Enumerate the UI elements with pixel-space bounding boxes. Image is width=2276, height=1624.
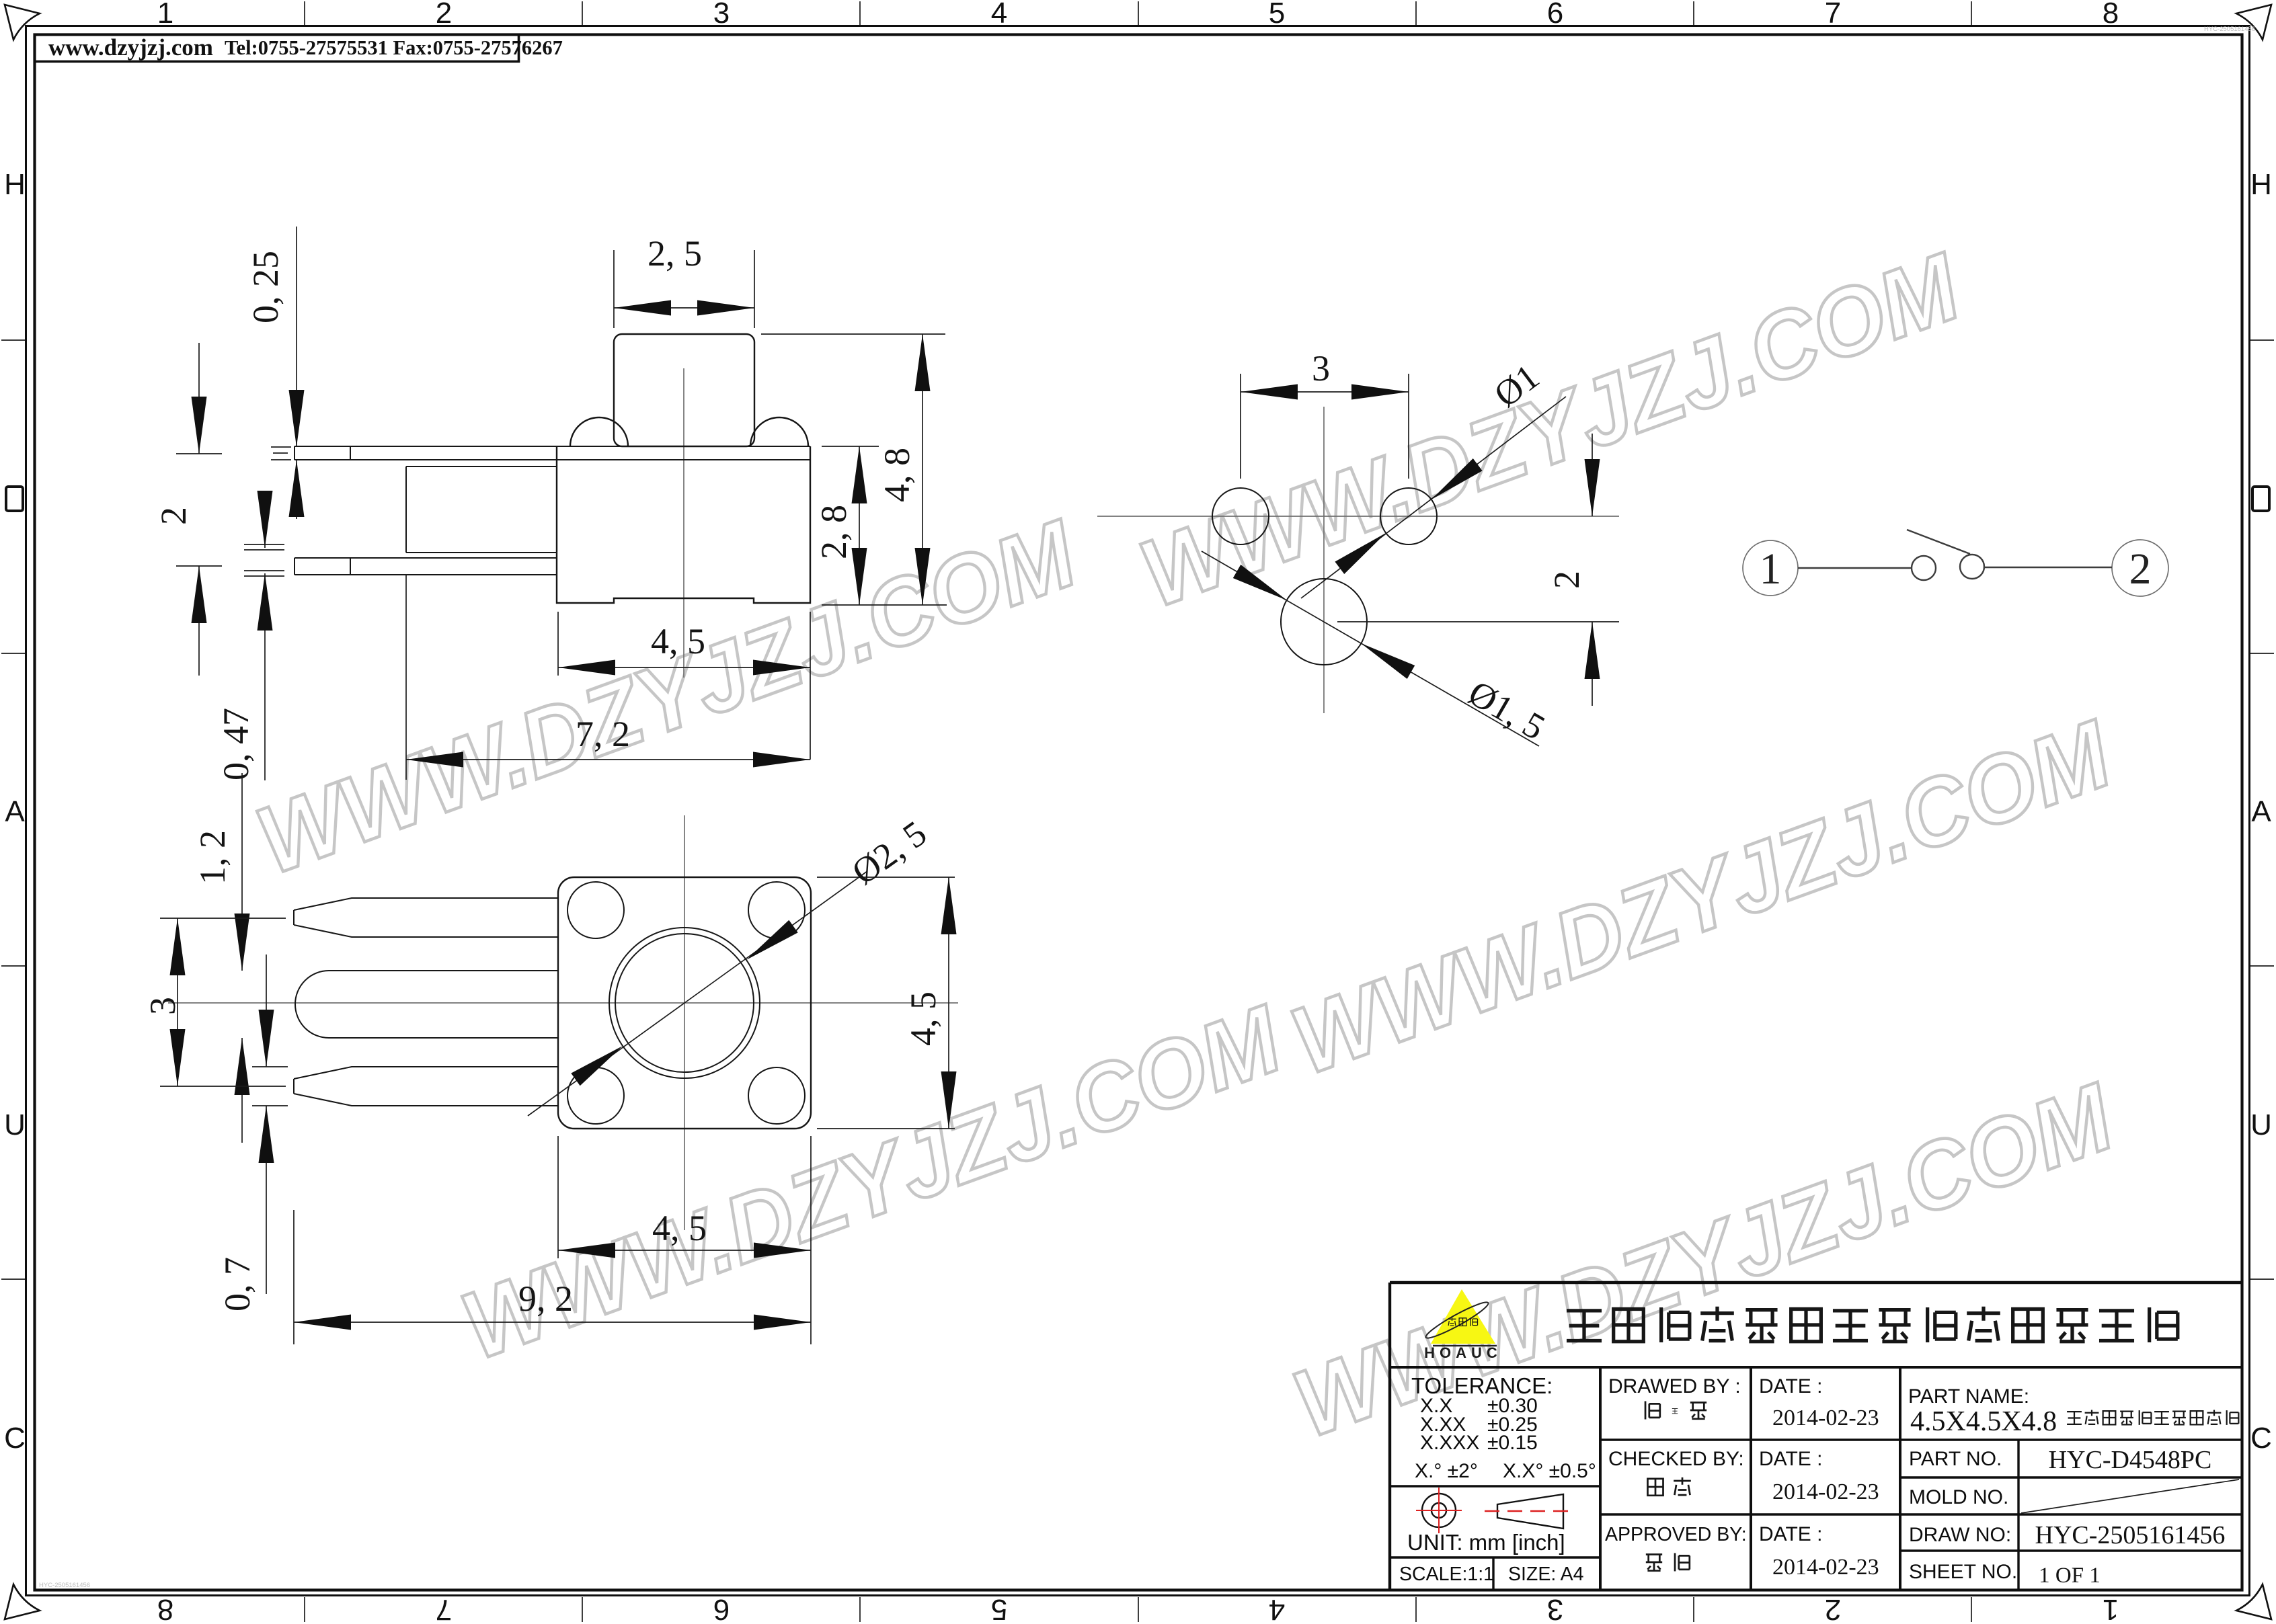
svg-text:U: U — [2250, 1108, 2272, 1141]
svg-text:WWW.DZYJZJ.COM: WWW.DZYJZJ.COM — [448, 985, 1296, 1380]
svg-text:0, 7: 0, 7 — [217, 1257, 258, 1311]
svg-text:1 OF 1: 1 OF 1 — [2039, 1564, 2101, 1588]
svg-text:2014-02-23: 2014-02-23 — [1772, 1406, 1879, 1430]
svg-text:1: 1 — [2103, 1593, 2119, 1624]
svg-text:8: 8 — [157, 1593, 173, 1624]
svg-text:4, 5: 4, 5 — [903, 991, 943, 1046]
svg-text:Tel:0755-27575531 Fax:0755-27: Tel:0755-27575531 Fax:0755-27576267 — [225, 36, 563, 59]
svg-text:2014-02-23: 2014-02-23 — [1772, 1479, 1879, 1504]
svg-text:X.° ±2°: X.° ±2° — [1415, 1460, 1478, 1482]
svg-text:DATE :: DATE : — [1759, 1375, 1822, 1397]
svg-text:3: 3 — [713, 0, 730, 30]
svg-text:2: 2 — [436, 0, 452, 30]
svg-text:4, 5: 4, 5 — [652, 1208, 707, 1248]
svg-text:3: 3 — [1547, 1593, 1563, 1624]
svg-text:4.5X4.5X4.8: 4.5X4.5X4.8 — [1910, 1406, 2057, 1437]
svg-text:X.X° ±0.5°: X.X° ±0.5° — [1503, 1460, 1596, 1482]
svg-text:H: H — [2250, 168, 2272, 201]
svg-text:HYC-2505161456: HYC-2505161456 — [39, 1582, 90, 1589]
svg-text:4, 8: 4, 8 — [877, 448, 917, 502]
svg-text:A: A — [2251, 795, 2271, 828]
svg-text:7, 2: 7, 2 — [576, 714, 630, 754]
svg-text:2: 2 — [2129, 544, 2152, 594]
svg-text:8: 8 — [2103, 0, 2119, 30]
svg-text:U: U — [4, 1108, 26, 1141]
svg-text:UNIT: mm [inch]: UNIT: mm [inch] — [1407, 1530, 1565, 1555]
svg-text:X.XXX: X.XXX — [1420, 1432, 1479, 1454]
svg-text:SIZE: A4: SIZE: A4 — [1508, 1564, 1584, 1585]
svg-text:DATE :: DATE : — [1759, 1523, 1822, 1545]
svg-text:7: 7 — [436, 1593, 452, 1624]
svg-text:3: 3 — [143, 997, 183, 1015]
svg-text:Ø2, 5: Ø2, 5 — [845, 813, 934, 893]
svg-text:7: 7 — [1825, 0, 1841, 30]
svg-text:Ø1, 5: Ø1, 5 — [1462, 672, 1552, 747]
svg-text:1: 1 — [157, 0, 173, 30]
svg-text:4: 4 — [991, 0, 1007, 30]
svg-text:DRAWED BY :: DRAWED BY : — [1608, 1375, 1741, 1397]
svg-text:2014-02-23: 2014-02-23 — [1772, 1555, 1879, 1580]
svg-text:H: H — [4, 168, 26, 201]
svg-text:SCALE:1:1: SCALE:1:1 — [1399, 1564, 1494, 1585]
svg-text:WWW.DZYJZJ.COM: WWW.DZYJZJ.COM — [243, 499, 1091, 895]
svg-text:APPROVED BY:: APPROVED BY: — [1605, 1524, 1747, 1545]
svg-text:4, 5: 4, 5 — [651, 621, 705, 661]
svg-text:MOLD NO.: MOLD NO. — [1909, 1486, 2008, 1508]
svg-text:2: 2 — [1825, 1593, 1841, 1624]
svg-text:DATE :: DATE : — [1759, 1448, 1822, 1470]
svg-text:PART NAME:: PART NAME: — [1908, 1385, 2029, 1408]
svg-text:0, 25: 0, 25 — [245, 251, 286, 323]
svg-text:5: 5 — [1269, 0, 1285, 30]
svg-text:A: A — [5, 795, 25, 828]
svg-text:1: 1 — [1760, 544, 1782, 594]
svg-text:HYC-2505161456: HYC-2505161456 — [2035, 1521, 2226, 1549]
svg-text:2: 2 — [153, 507, 194, 525]
svg-text:CHECKED BY:: CHECKED BY: — [1608, 1448, 1744, 1470]
svg-text:±0.15: ±0.15 — [1487, 1432, 1538, 1454]
svg-text:WWW.DZYJZJ.COM: WWW.DZYJZJ.COM — [1278, 700, 2125, 1095]
svg-text:0, 47: 0, 47 — [216, 708, 256, 780]
svg-text:HOAUC: HOAUC — [1424, 1344, 1502, 1361]
svg-text:9, 2: 9, 2 — [518, 1278, 573, 1319]
svg-text:4: 4 — [1269, 1593, 1285, 1624]
svg-text:1, 2: 1, 2 — [192, 830, 233, 885]
svg-text:3: 3 — [1312, 348, 1330, 389]
svg-text:C: C — [2250, 1422, 2272, 1455]
svg-text:6: 6 — [713, 1593, 730, 1624]
svg-text:C: C — [4, 1422, 26, 1455]
svg-text:SHEET NO.: SHEET NO. — [1909, 1561, 2017, 1583]
svg-text:DRAW NO:: DRAW NO: — [1909, 1524, 2011, 1546]
svg-text:2, 8: 2, 8 — [814, 505, 854, 559]
svg-text:HYC-2505161456: HYC-2505161456 — [2204, 26, 2255, 33]
svg-text:2: 2 — [1546, 571, 1587, 589]
svg-text:5: 5 — [991, 1593, 1007, 1624]
svg-text:PART NO.: PART NO. — [1909, 1448, 2002, 1470]
svg-text:2, 5: 2, 5 — [648, 233, 702, 274]
svg-text:www.dzyjzj.com: www.dzyjzj.com — [48, 34, 213, 60]
svg-text:6: 6 — [1547, 0, 1563, 30]
svg-text:HYC-D4548PC: HYC-D4548PC — [2049, 1446, 2212, 1474]
